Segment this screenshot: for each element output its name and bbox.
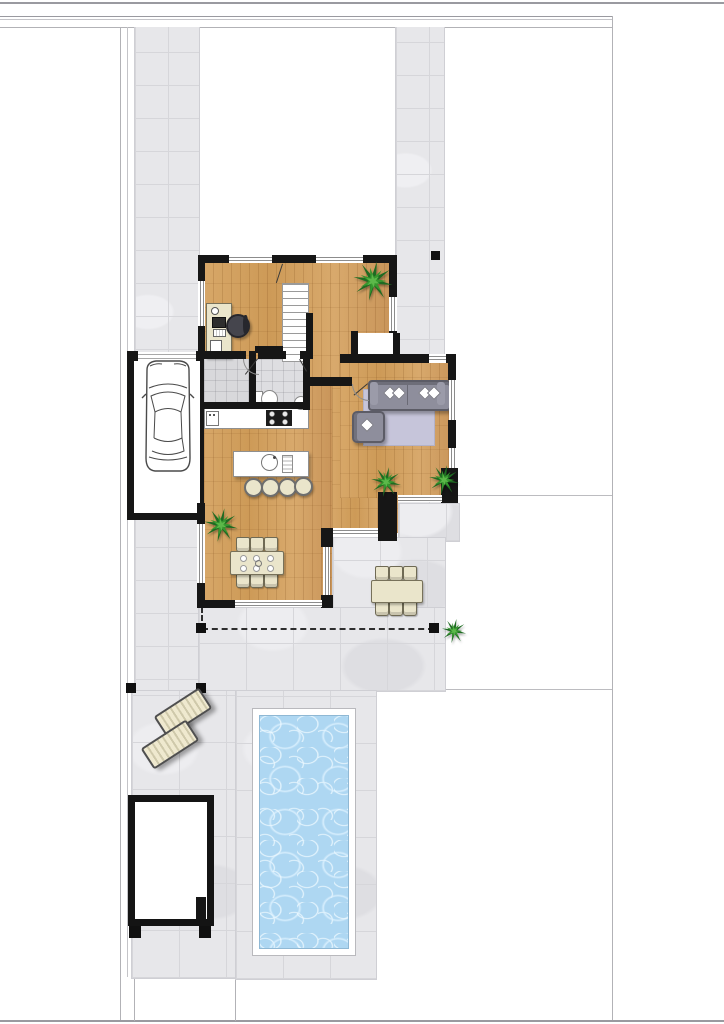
- desk-lamp: [211, 307, 219, 315]
- wall-segment: [321, 528, 333, 547]
- outdoor-chair: [389, 566, 403, 581]
- window: [198, 281, 205, 326]
- window: [449, 380, 456, 420]
- plant: [428, 464, 460, 496]
- plot-boundary-top: [0, 2, 724, 4]
- office-chair-back: [243, 315, 248, 334]
- indoor-dining-table: [230, 551, 284, 575]
- lawn-edge-line: [444, 689, 612, 690]
- boundary-post: [431, 251, 440, 260]
- outdoor-chair: [375, 601, 389, 616]
- plant: [441, 618, 467, 644]
- garage-wall: [127, 513, 207, 520]
- bar-stool: [294, 477, 313, 496]
- window: [389, 297, 397, 331]
- shed-footing: [199, 926, 211, 938]
- wall-segment: [321, 595, 333, 608]
- wall-segment: [448, 354, 456, 380]
- wall-pillar: [378, 492, 397, 541]
- shed-wall-notch: [196, 897, 206, 920]
- dining-chair: [236, 573, 250, 588]
- sofa-armrest: [370, 382, 378, 405]
- table-centerpiece: [255, 560, 262, 567]
- lawn-edge-line: [456, 495, 612, 496]
- paving-edge-line: [134, 977, 135, 1021]
- plot-boundary-bottom: [0, 1020, 724, 1022]
- desk-monitor: [212, 317, 226, 328]
- shed-footing: [129, 926, 141, 938]
- outdoor-chair: [375, 566, 389, 581]
- car: [138, 358, 198, 474]
- pergola-post: [126, 683, 136, 693]
- kitchen-counter: [204, 408, 309, 429]
- desk-keyboard: [213, 329, 226, 337]
- island-sink: [261, 454, 278, 471]
- cooktop: [266, 410, 292, 426]
- dining-chair: [264, 573, 278, 588]
- dining-chair: [250, 573, 264, 588]
- window: [235, 600, 322, 607]
- outdoor-chair: [403, 566, 417, 581]
- paving-edge-line: [235, 978, 236, 1021]
- wall-segment: [204, 351, 246, 359]
- wall-segment: [393, 333, 400, 354]
- wall-segment: [200, 402, 310, 409]
- outdoor-chair: [403, 601, 417, 616]
- plant: [203, 507, 239, 543]
- wall-segment: [448, 420, 456, 448]
- wall-segment: [197, 583, 205, 608]
- sofa-seat-divider: [407, 385, 408, 405]
- wall-segment: [198, 255, 205, 281]
- pergola-post: [196, 623, 206, 633]
- plot-boundary-right: [612, 16, 613, 1021]
- wall-segment: [340, 354, 429, 363]
- plant: [370, 466, 402, 498]
- window: [323, 547, 330, 597]
- terrace-dashed-line: [202, 628, 434, 630]
- site-plan: [0, 0, 724, 1024]
- window: [229, 255, 272, 263]
- garage-wall: [127, 351, 134, 520]
- counter-sink: [206, 411, 219, 426]
- plant: [352, 260, 394, 302]
- terrace-paving: [198, 607, 446, 692]
- plot-boundary-line: [0, 27, 613, 28]
- wall-segment: [351, 331, 358, 354]
- plot-boundary-line: [0, 19, 613, 20]
- cutting-board: [282, 455, 293, 473]
- facade-notch: [357, 333, 394, 354]
- garage-door-jamb: [127, 351, 138, 361]
- dining-chair: [264, 537, 278, 552]
- plot-boundary-line: [0, 16, 613, 17]
- wall-segment: [255, 346, 283, 353]
- wall-segment: [272, 255, 316, 263]
- outdoor-chair: [389, 601, 403, 616]
- outdoor-dining-table: [371, 580, 423, 603]
- plot-boundary-left: [120, 27, 121, 1021]
- window: [333, 528, 378, 536]
- wall-segment: [310, 377, 352, 386]
- window: [398, 495, 442, 502]
- pergola-post: [429, 623, 439, 633]
- pool-water: [259, 715, 349, 949]
- dining-chair: [250, 537, 264, 552]
